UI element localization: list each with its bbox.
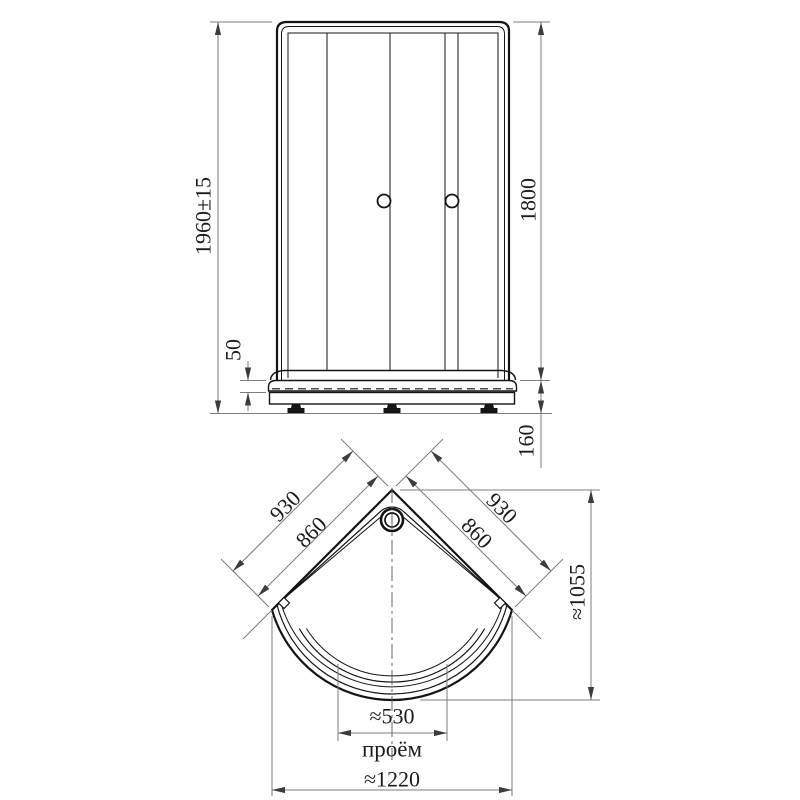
shower-cabin-drawing: 1960±15 50 1800 160 [0,0,800,800]
dim-rim-height-label: 50 [221,339,246,361]
dim-right-outer-label: 930 [481,487,522,528]
dim-base-height-label: 160 [514,425,539,458]
front-view: 1960±15 50 1800 160 [191,22,553,468]
dim-total-width-label: ≈1220 [364,767,420,792]
ext-line-apex-right [396,439,443,486]
foot-right [481,404,498,413]
edge-extension-right [512,610,541,639]
foot-left [288,404,305,413]
ext-line-apex-left [341,439,388,486]
door-knob-left [378,195,391,208]
edge-extension-left [243,610,272,639]
ext-line-end-right [515,559,563,607]
door-knob-right [446,195,459,208]
dim-door-height-label: 1800 [516,178,541,222]
opening-caption: проём [362,737,423,762]
plan-view: 930 860 930 860 ≈1055 ≈530 проём ≈1220 [221,439,600,796]
dim-depth-label: ≈1055 [565,564,590,620]
tray-rim-band [269,381,517,392]
dim-left-inner-label: 860 [290,511,331,552]
dim-right-inner-label: 860 [456,512,497,553]
enclosure-outer-frame [277,22,509,380]
ext-line-end-left [221,559,269,607]
foot-center [384,404,401,413]
dim-left-outer-label: 930 [264,485,305,526]
dim-total-height-label: 1960±15 [191,177,216,255]
base-box [270,393,515,405]
dim-opening-label: ≈530 [369,704,414,729]
technical-drawing-page: 1960±15 50 1800 160 [0,0,800,800]
